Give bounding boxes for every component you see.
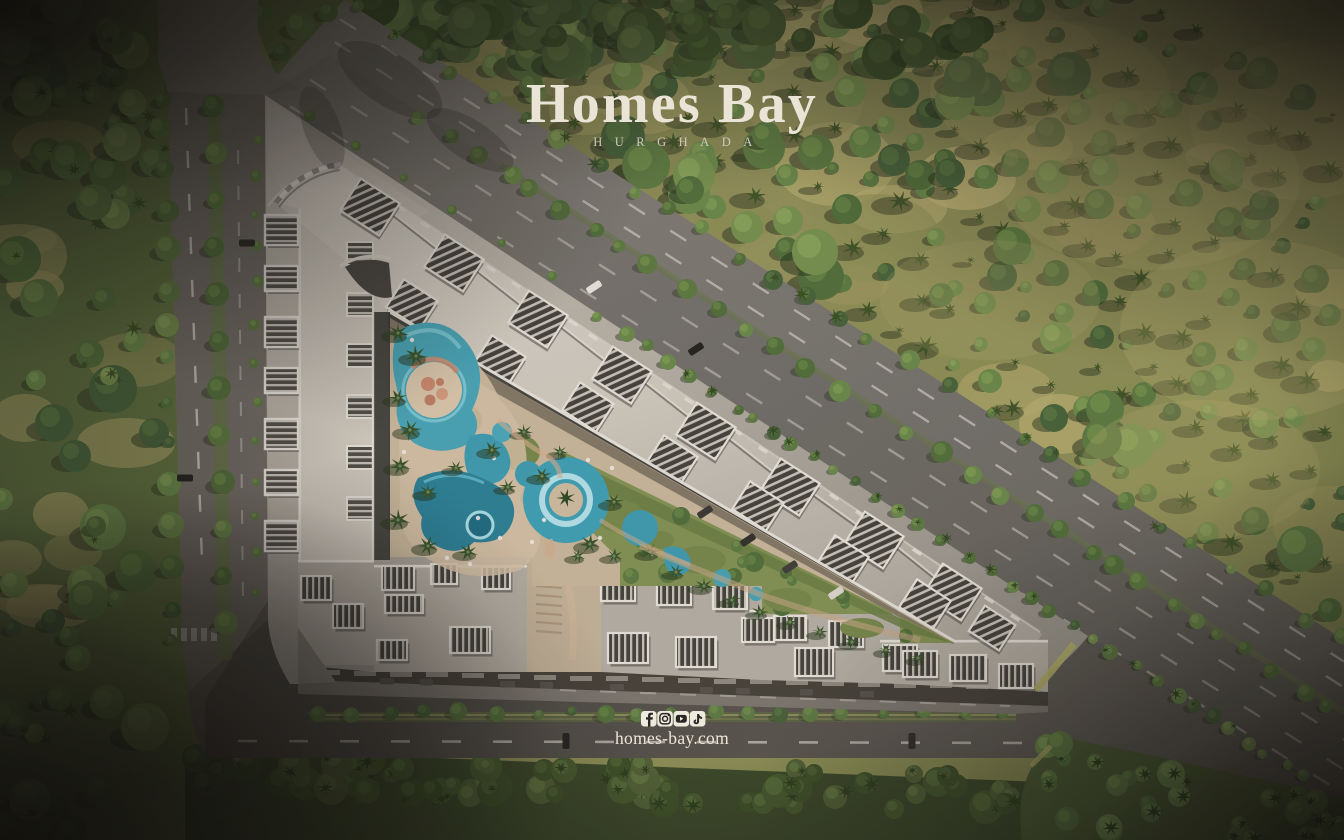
svg-text:Homes Bay: Homes Bay xyxy=(526,73,818,135)
svg-text:homes-bay.com: homes-bay.com xyxy=(615,728,729,748)
svg-text:HURGHADA: HURGHADA xyxy=(593,135,765,149)
